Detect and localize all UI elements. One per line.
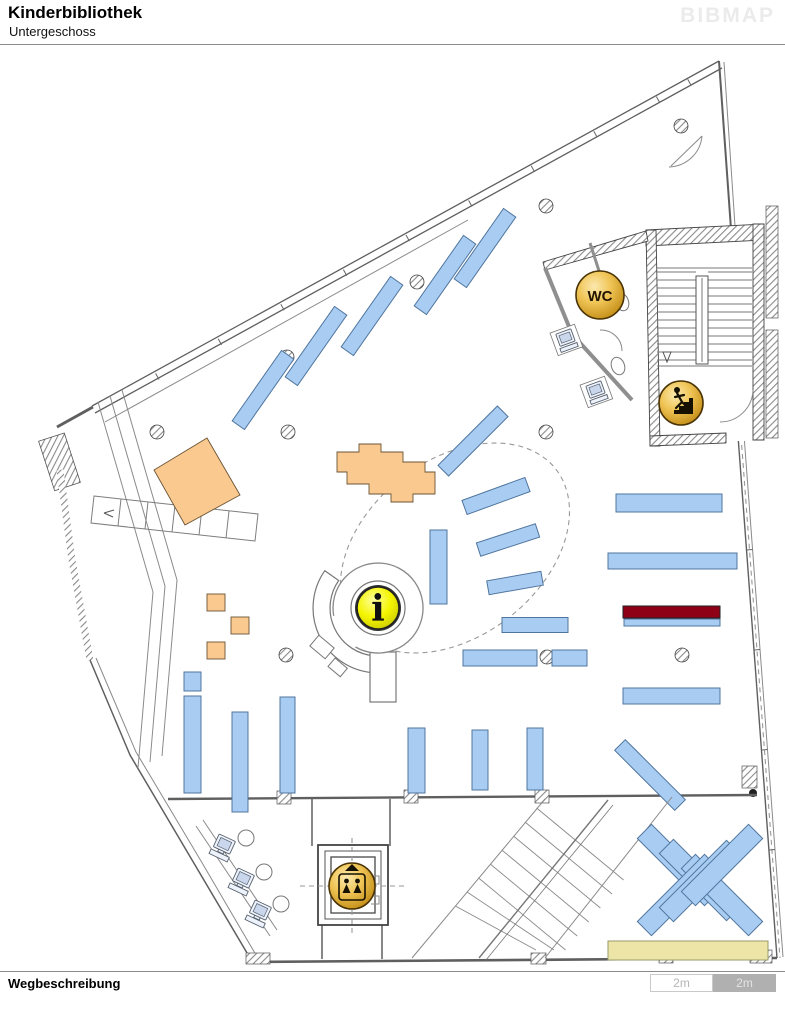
podium-steps <box>337 444 435 502</box>
shelf <box>438 406 508 476</box>
computer-icon <box>209 834 236 862</box>
shelf <box>285 306 347 385</box>
scale-segment-dark: 2m <box>713 974 776 992</box>
seat-cube <box>231 617 249 634</box>
computer-icon <box>245 900 272 928</box>
shelf <box>624 619 720 626</box>
computer-icon <box>580 376 613 407</box>
shelf <box>462 477 530 514</box>
shelf <box>341 276 403 355</box>
info-icon[interactable]: i <box>355 585 401 631</box>
shelf <box>430 530 447 604</box>
crisscross-shelves <box>637 824 762 935</box>
page-title: Kinderbibliothek <box>8 3 142 23</box>
facade-pier <box>742 766 757 788</box>
computer-area <box>196 820 289 936</box>
shelf <box>408 728 425 793</box>
bench <box>608 941 768 960</box>
shelf <box>476 524 539 556</box>
floor-subtitle: Untergeschoss <box>9 24 96 39</box>
shelf <box>184 672 201 691</box>
ramp <box>91 390 258 768</box>
left-wall-hatch <box>60 470 90 660</box>
shelf <box>472 730 488 790</box>
bibmap-logo: BIBMAP <box>680 4 775 28</box>
floorplan-canvas: WC i <box>0 0 785 1011</box>
seat-cube <box>207 642 225 659</box>
elevator-icon[interactable] <box>329 863 375 909</box>
facade-mullions <box>156 79 692 379</box>
shelf <box>608 553 737 569</box>
seat-cube <box>207 594 225 611</box>
highlighted-shelf[interactable] <box>623 606 720 618</box>
route-description-label: Wegbeschreibung <box>8 976 120 991</box>
shelf <box>463 650 537 666</box>
shelf <box>232 350 294 429</box>
shelf <box>615 740 686 811</box>
wc-icon-label: WC <box>588 288 613 305</box>
wc-door-arc <box>600 330 622 351</box>
stairs-person-icon[interactable] <box>659 381 703 425</box>
wc-icon[interactable]: WC <box>576 271 624 319</box>
info-desk <box>310 563 423 702</box>
scale-bar: 2m 2m <box>650 974 776 992</box>
lower-staircase <box>412 797 672 960</box>
header: Kinderbibliothek Untergeschoss BIBMAP <box>0 0 785 45</box>
info-icon-label: i <box>371 588 385 630</box>
play-podium <box>154 438 240 525</box>
shelf <box>527 728 543 790</box>
shelf <box>280 697 295 793</box>
shelf <box>623 688 720 704</box>
shelf <box>502 618 568 633</box>
shelf <box>616 494 722 512</box>
toilet <box>609 355 627 376</box>
shelf <box>487 571 544 594</box>
shelf <box>184 696 201 793</box>
footer: Wegbeschreibung 2m 2m <box>0 971 785 1012</box>
computer-icon <box>550 324 583 355</box>
entrance-door <box>669 136 702 167</box>
shelf <box>552 650 587 666</box>
scale-segment-light: 2m <box>650 974 713 992</box>
shelf <box>232 712 248 812</box>
